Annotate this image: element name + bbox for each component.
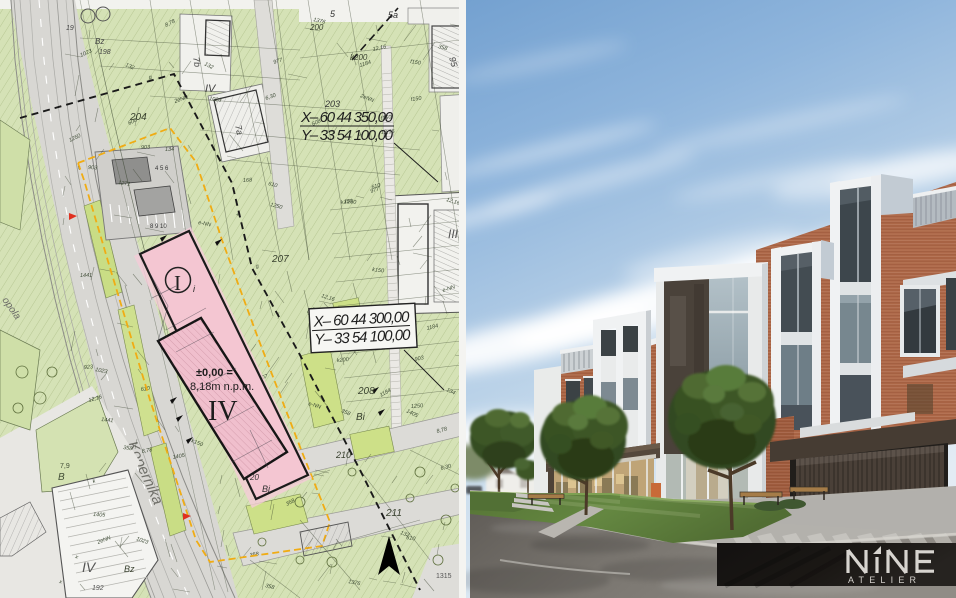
svg-text:±0,00 =: ±0,00 = (196, 367, 233, 379)
svg-text:903: 903 (141, 145, 151, 151)
svg-text:204: 204 (129, 112, 147, 123)
svg-text:1441: 1441 (80, 273, 92, 279)
svg-text:ATELIER: ATELIER (848, 575, 921, 585)
svg-text:1250: 1250 (411, 403, 425, 410)
svg-text:Bi: Bi (356, 412, 366, 423)
svg-text:168: 168 (243, 177, 253, 184)
svg-text:20: 20 (249, 473, 259, 482)
svg-text:Bz: Bz (124, 564, 135, 574)
svg-text:211: 211 (385, 508, 402, 519)
svg-text:903: 903 (88, 165, 98, 171)
svg-text:207: 207 (271, 254, 289, 265)
svg-text:k200: k200 (337, 357, 350, 364)
svg-text:210: 210 (335, 450, 351, 460)
svg-text:I: I (174, 271, 181, 295)
svg-text:203: 203 (324, 99, 340, 109)
svg-text:198: 198 (99, 49, 111, 56)
svg-text:200: 200 (309, 23, 324, 32)
svg-text:7,9: 7,9 (60, 463, 70, 470)
svg-text:1315: 1315 (436, 573, 452, 580)
svg-text:IV: IV (205, 83, 217, 95)
svg-text:B: B (58, 472, 65, 483)
svg-text:4 5 6: 4 5 6 (155, 166, 169, 172)
svg-text:Bz: Bz (95, 37, 104, 46)
svg-text:X– 60 44 350,00: X– 60 44 350,00 (300, 109, 394, 126)
svg-text:Y– 33 54 100,00: Y– 33 54 100,00 (301, 127, 394, 144)
svg-text:1405: 1405 (93, 512, 106, 519)
svg-text:1441: 1441 (101, 417, 114, 424)
svg-text:IV: IV (208, 396, 238, 427)
svg-text:k200: k200 (350, 53, 368, 62)
svg-text:208: 208 (357, 386, 375, 397)
svg-text:923: 923 (84, 364, 95, 371)
svg-text:8,18m n.p.m.: 8,18m n.p.m. (190, 381, 254, 393)
svg-text:134: 134 (165, 147, 174, 153)
svg-text:Bi: Bi (262, 484, 271, 494)
svg-text:192: 192 (92, 585, 104, 592)
svg-text:IV: IV (82, 559, 97, 575)
svg-text:19: 19 (66, 25, 74, 32)
svg-text:8 9 10: 8 9 10 (150, 224, 167, 230)
